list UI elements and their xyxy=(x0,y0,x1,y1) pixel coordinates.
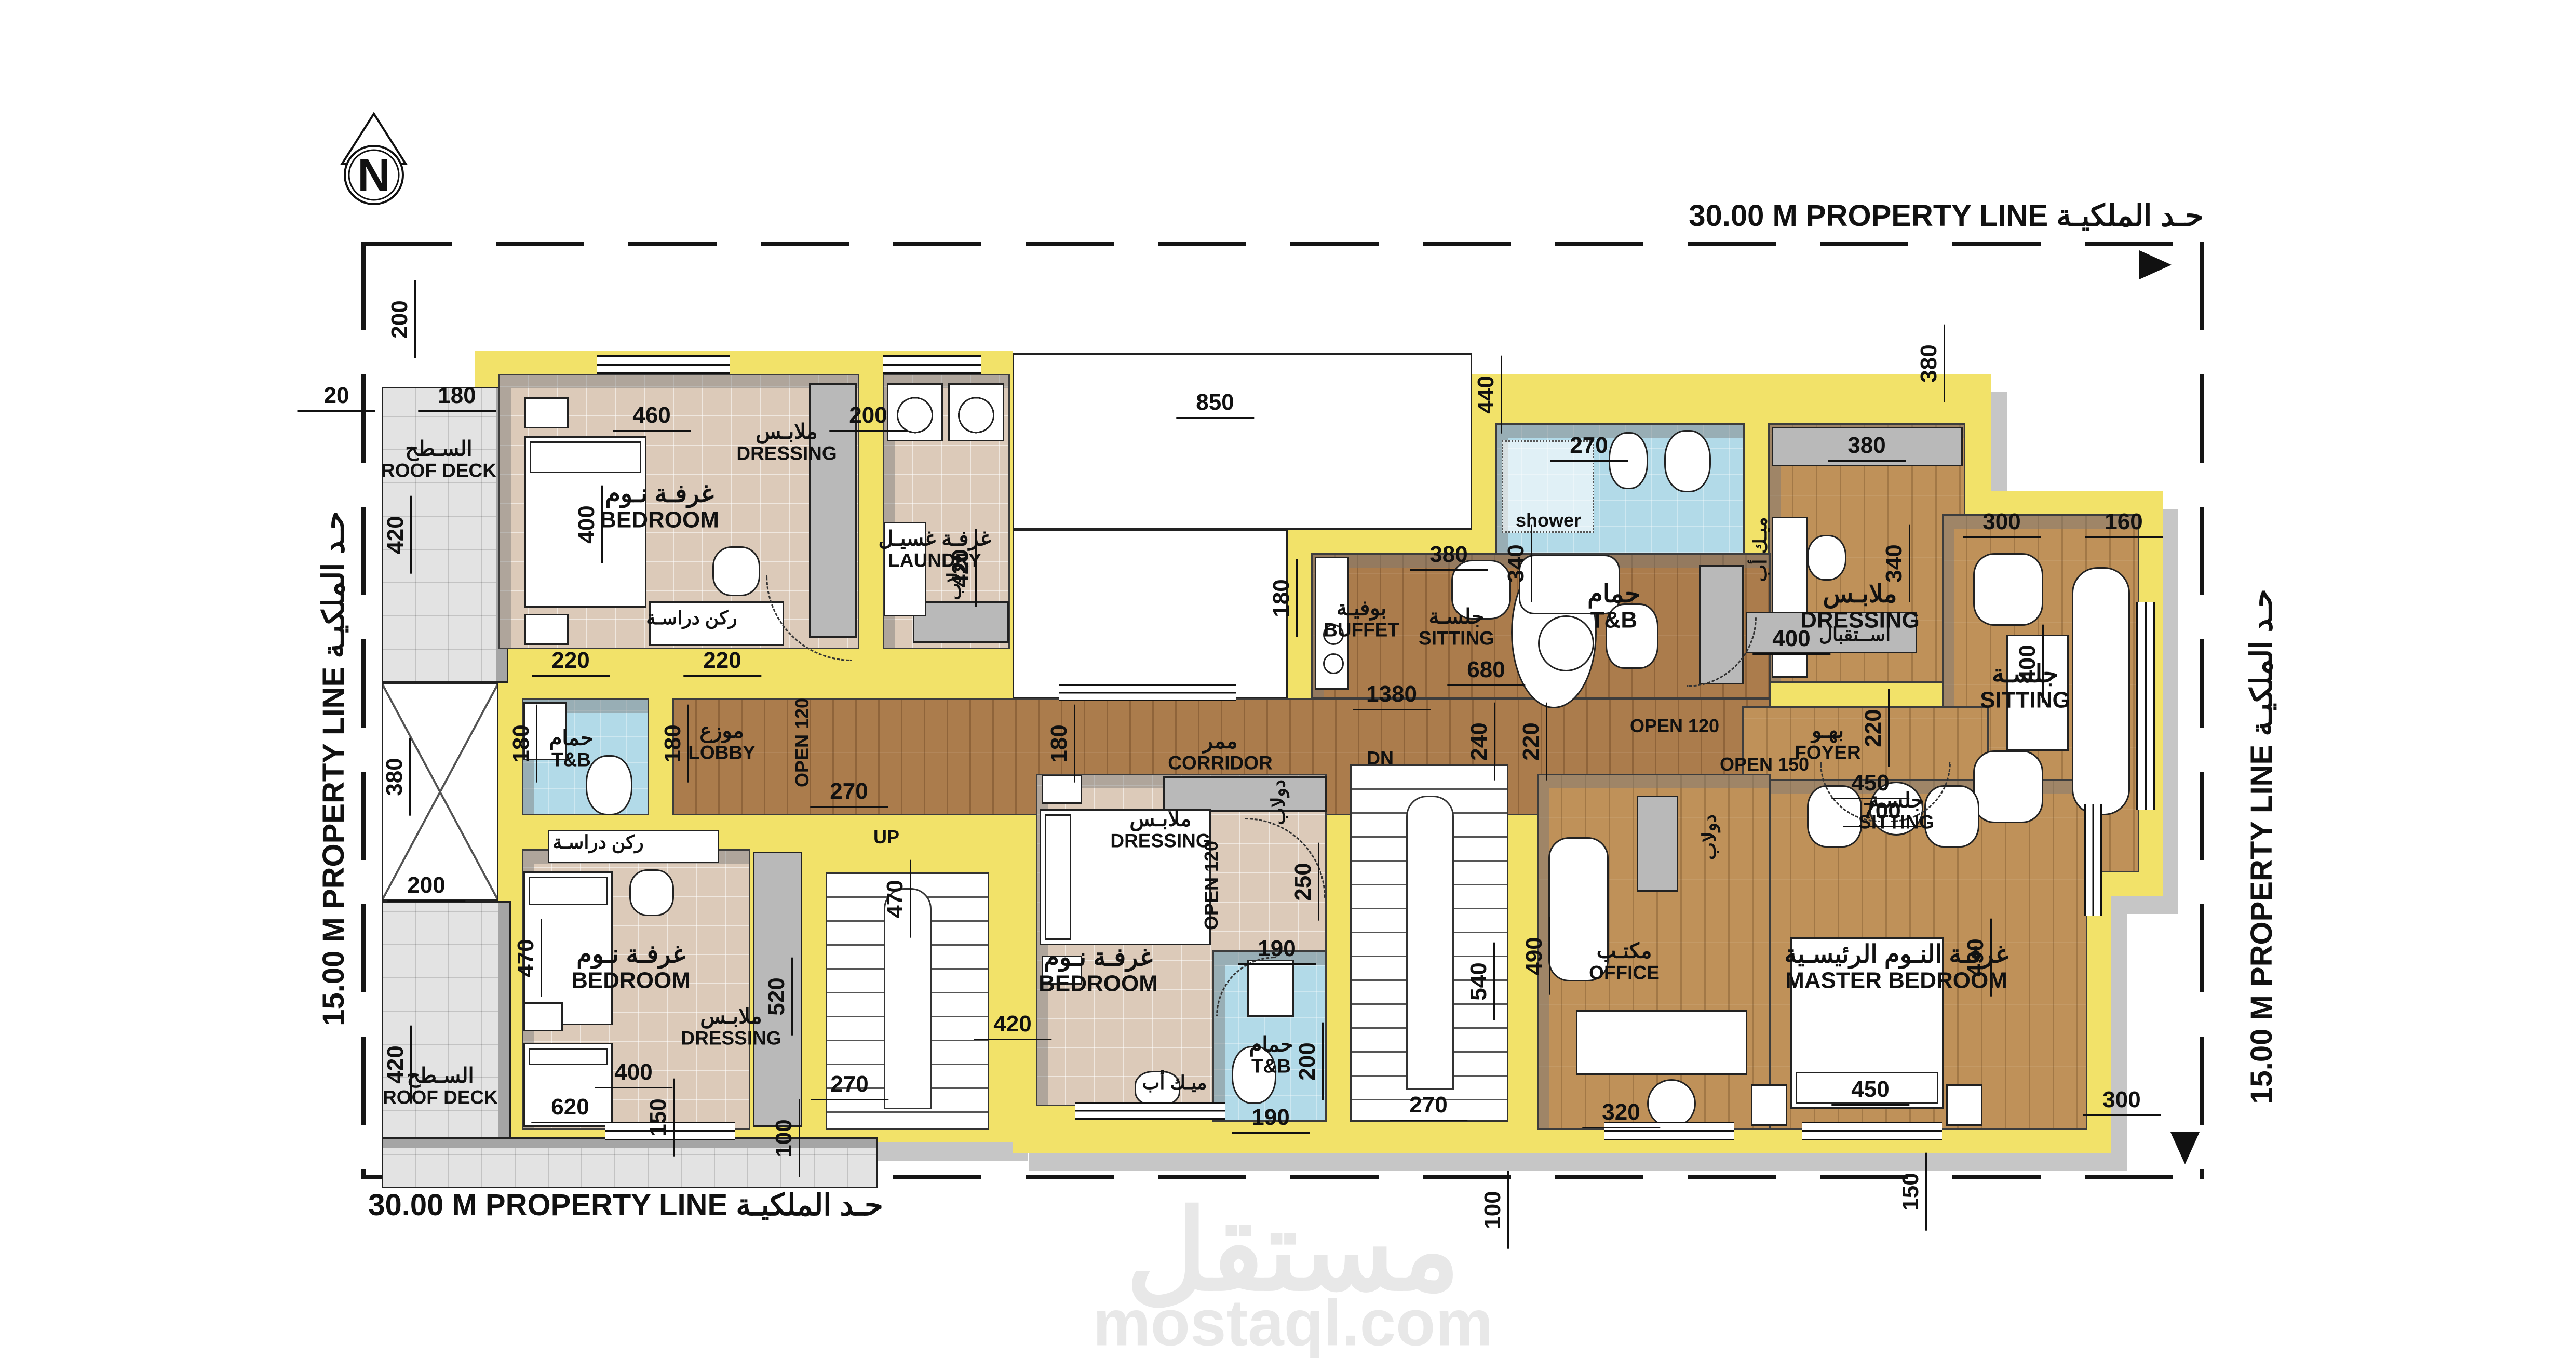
annotation-label: shower xyxy=(1516,511,1581,530)
room-label-dressing-3: ملابـسDRESSING xyxy=(681,1005,781,1048)
property-line-label: 30.00 M PROPERTY LINE حـد الملكيـة xyxy=(1689,198,2204,233)
dimension-label: 220 xyxy=(1520,722,1543,760)
annotation-label: OPEN 120 xyxy=(793,698,812,787)
annotation-label: دولاب xyxy=(1700,814,1719,860)
annotation-label: ركن دراسـة xyxy=(552,833,643,852)
room-label-sitting-open: جلسـةSITTING xyxy=(1419,606,1494,649)
window xyxy=(1075,1102,1225,1120)
dimension-label: 340 xyxy=(1883,544,1906,582)
dimension-label: 300 xyxy=(2102,1088,2140,1111)
dimension-label: 1380 xyxy=(1366,683,1417,706)
armchair xyxy=(1973,553,2043,626)
dimension-label: 620 xyxy=(551,1096,589,1119)
dimension-label: 340 xyxy=(1505,544,1528,582)
dimension-label: 150 xyxy=(647,1098,670,1136)
dimension-label: 850 xyxy=(1196,391,1234,414)
dimension-label: 270 xyxy=(1409,1094,1447,1117)
dimension-label: 400 xyxy=(575,505,598,543)
dimension-label: 380 xyxy=(383,758,406,796)
property-line-top xyxy=(363,242,2204,246)
dimension-label: 460 xyxy=(632,404,670,427)
dimension-label: 420 xyxy=(384,516,407,554)
north-letter: N xyxy=(357,149,390,200)
roof-deck-bottom-strip xyxy=(382,1137,878,1188)
round-table xyxy=(1538,615,1594,671)
annotation-label: دولاب xyxy=(1269,779,1288,825)
room-label-sitting-master: جلسـةSITTING xyxy=(1858,789,1934,832)
dimension-label: 380 xyxy=(1847,434,1885,457)
annotation-label: DN xyxy=(1367,749,1394,768)
chair xyxy=(629,869,674,916)
dimension-label: 220 xyxy=(551,649,589,672)
room-label-office: مكتـبOFFICE xyxy=(1589,940,1660,983)
room-label-buffet: بوفيـةBUFFET xyxy=(1324,597,1399,640)
window xyxy=(1802,1122,1942,1140)
property-line-label: 30.00 M PROPERTY LINE حـد الملكيـة xyxy=(368,1187,883,1222)
window xyxy=(2136,602,2155,810)
dimension-label: 180 xyxy=(662,724,684,762)
staircase-down xyxy=(1350,764,1508,1122)
closet-office xyxy=(1637,796,1678,892)
toilet-icon xyxy=(1664,430,1711,492)
dimension-label: 160 xyxy=(2105,510,2142,533)
annotation-label: UP xyxy=(873,828,899,846)
dimension-label: 450 xyxy=(1851,1078,1889,1101)
nightstand xyxy=(1751,1084,1787,1126)
window xyxy=(883,355,981,374)
dimension-label: 440 xyxy=(1475,375,1498,413)
dimension-label: 250 xyxy=(1292,863,1315,900)
window xyxy=(1059,684,1236,701)
dimension-label: 190 xyxy=(1251,1106,1289,1129)
roof-deck-left-strip xyxy=(382,901,511,1178)
annotation-label: OPEN 120 xyxy=(1630,717,1719,735)
property-line-label: 15.00 M PROPERTY LINE حـد الملكيـة xyxy=(316,511,351,1026)
office-desk xyxy=(1576,1010,1747,1075)
property-line-right xyxy=(2200,242,2204,1179)
room-label-bedroom-1: غرفـة نـومBEDROOM xyxy=(600,480,719,532)
nightstand xyxy=(524,397,569,428)
room-label-tb-2: حمامT&B xyxy=(1249,1033,1293,1077)
courtyard-void-left xyxy=(1013,530,1288,698)
dimension-label: 380 xyxy=(1429,543,1467,566)
property-arrow-bottom-right-icon xyxy=(2170,1132,2200,1164)
floor-plan-canvas: N مستقل mostaql.com 20020180460200850440… xyxy=(0,0,2576,1358)
dimension-label: 180 xyxy=(510,724,533,762)
room-label-foyer: بهـوFOYER xyxy=(1795,720,1860,763)
room-label-dressing-master: ملابـسDRESSING xyxy=(1800,581,1920,632)
dimension-label: 270 xyxy=(830,780,868,803)
dimension-label: 20 xyxy=(324,384,349,407)
dimension-label: 300 xyxy=(1982,510,2020,533)
property-line-label: 15.00 M PROPERTY LINE حـد الملكيـة xyxy=(2244,589,2279,1104)
dimension-label: 150 xyxy=(1899,1173,1922,1211)
dimension-label: 320 xyxy=(1602,1101,1640,1124)
annotation-label: OPEN 120 xyxy=(1202,841,1221,930)
dimension-label: 470 xyxy=(884,880,907,918)
dimension-label: 180 xyxy=(1270,579,1293,617)
sofa-sitting-right xyxy=(2072,567,2130,815)
dimension-label: 200 xyxy=(388,300,411,338)
room-label-roof-deck-top: السـطحROOF DECK xyxy=(381,438,496,481)
dimension-label: 270 xyxy=(1570,434,1608,457)
dimension-label: 490 xyxy=(1523,937,1546,975)
office-chair xyxy=(1647,1079,1696,1128)
room-label-lobby: موزعLOBBY xyxy=(688,720,756,763)
nightstand xyxy=(1042,775,1082,804)
courtyard-void-top xyxy=(1013,353,1472,530)
annotation-label: ميـك أب xyxy=(1751,517,1770,582)
dimension-label: 180 xyxy=(1048,724,1071,762)
nightstand xyxy=(1946,1084,1982,1126)
armchair xyxy=(1973,750,2043,823)
dimension-label: 220 xyxy=(1862,709,1885,747)
dimension-label: 200 xyxy=(1296,1042,1319,1080)
annotation-label: ركن دراسـة xyxy=(646,609,737,627)
dimension-label: 220 xyxy=(703,649,741,672)
closet-bedroom-2 xyxy=(1163,776,1327,812)
property-line-left xyxy=(361,242,366,1179)
dimension-label: 200 xyxy=(849,404,887,427)
dimension-label: 540 xyxy=(1467,962,1490,1000)
nightstand xyxy=(524,614,569,645)
room-label-master-bedroom: غرفـة النـوم الرئيسـيةMASTER BEDROOM xyxy=(1784,941,2008,992)
watermark-latin: mostaql.com xyxy=(1093,1286,1493,1358)
window xyxy=(2084,804,2102,916)
dimension-label: 420 xyxy=(993,1013,1031,1036)
dimension-label: 100 xyxy=(1481,1191,1504,1229)
washing-machine-icon xyxy=(948,383,1004,441)
room-label-laundry: غرفـة غسيـلLAUNDRY xyxy=(878,528,991,571)
dimension-label: 270 xyxy=(830,1073,868,1096)
window xyxy=(597,355,730,374)
dimension-label: 200 xyxy=(407,874,445,897)
room-label-dressing-2: ملابـسDRESSING xyxy=(1110,808,1210,851)
dimension-label: 380 xyxy=(1918,344,1940,382)
room-label-bedroom-2: غرفـة نـومBEDROOM xyxy=(1039,944,1158,996)
room-label-corridor: ممرCORRIDOR xyxy=(1168,730,1272,773)
room-label-sitting-right: جلسـةSITTING xyxy=(1980,661,2070,712)
closet-laundry xyxy=(913,601,1009,643)
dimension-label: 680 xyxy=(1467,658,1505,681)
dimension-label: 400 xyxy=(614,1061,652,1084)
nightstand xyxy=(523,1002,563,1031)
washing-machine-icon xyxy=(887,383,943,441)
chair xyxy=(712,546,760,596)
makeup-seat xyxy=(1807,535,1846,581)
dimension-label: 470 xyxy=(515,939,537,977)
room-label-roof-deck-bottom: السـطحROOF DECK xyxy=(383,1065,498,1108)
dimension-label: 180 xyxy=(438,384,476,407)
annotation-label: ميـك أب xyxy=(1142,1073,1207,1092)
room-label-tb-master: حمامT&B xyxy=(1587,581,1640,632)
room-label-tb-1: حمامT&B xyxy=(549,727,594,770)
room-label-bedroom-3: غرفـة نـومBEDROOM xyxy=(571,941,691,992)
dimension-label: 100 xyxy=(773,1119,795,1157)
stove-burner-icon xyxy=(1323,653,1344,674)
dimension-label: 190 xyxy=(1258,937,1296,960)
dimension-label: 240 xyxy=(1468,722,1491,760)
property-arrow-top-right-icon xyxy=(2139,250,2172,279)
room-label-dressing-1: ملابـسDRESSING xyxy=(736,421,837,464)
north-arrow: N xyxy=(340,112,408,213)
